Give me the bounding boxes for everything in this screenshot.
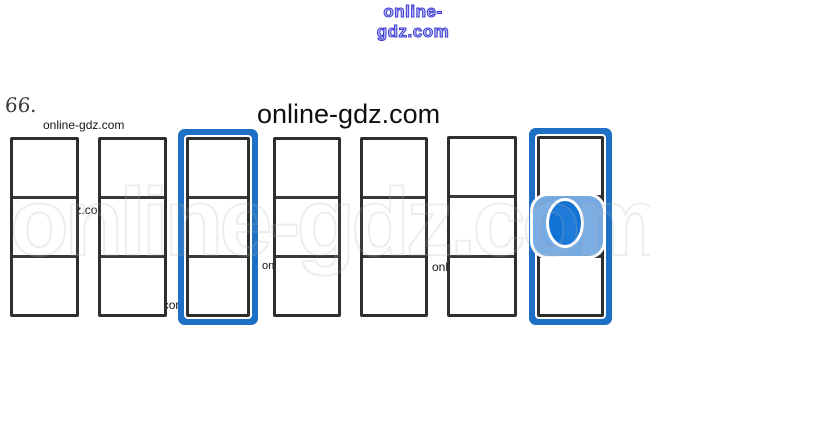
strip-4-cell-2-empty bbox=[276, 196, 338, 255]
strip-1-cell-2-empty bbox=[13, 196, 76, 255]
strip-3-cell-2-empty bbox=[189, 196, 247, 255]
strip-5 bbox=[360, 137, 428, 317]
scanned-page: online-gdz.com 66. online-gdz.com online… bbox=[0, 0, 823, 430]
strip-5-cell-1-empty bbox=[363, 140, 425, 196]
strip-6-cell-1-empty bbox=[450, 139, 514, 195]
strip-2-cell-3-empty bbox=[101, 255, 164, 314]
strip-7-cell-2-filled bbox=[540, 195, 601, 254]
strip-2 bbox=[98, 137, 167, 317]
strip-3-cell-1-empty bbox=[189, 140, 247, 196]
strip-1 bbox=[10, 137, 79, 317]
strip-5-cell-3-empty bbox=[363, 255, 425, 314]
filled-cell-ghost-oval bbox=[546, 198, 584, 248]
strip-3-cell-3-empty bbox=[189, 255, 247, 314]
exercise-number: 66. bbox=[4, 93, 37, 117]
strip-5-cell-2-empty bbox=[363, 196, 425, 255]
strip-7-cell-1-empty bbox=[540, 139, 601, 195]
watermark-small-1: online-gdz.com bbox=[43, 118, 124, 132]
strip-1-cell-1-empty bbox=[13, 140, 76, 196]
strip-6-cell-3-empty bbox=[450, 255, 514, 314]
filled-cell-ghost-square bbox=[530, 193, 606, 259]
strip-6 bbox=[447, 136, 517, 317]
strip-1-cell-3-empty bbox=[13, 255, 76, 314]
strip-3-highlighted bbox=[186, 137, 250, 317]
strip-7-highlighted bbox=[537, 136, 604, 317]
site-title-watermark: online-gdz.com bbox=[257, 99, 440, 130]
strip-4-cell-1-empty bbox=[276, 140, 338, 196]
strip-4-cell-3-empty bbox=[276, 255, 338, 314]
strip-6-cell-2-empty bbox=[450, 195, 514, 254]
strip-7-cell-3-empty bbox=[540, 255, 601, 314]
watermark-top: online-gdz.com bbox=[348, 2, 478, 42]
strip-2-cell-2-empty bbox=[101, 196, 164, 255]
strip-2-cell-1-empty bbox=[101, 140, 164, 196]
strip-4 bbox=[273, 137, 341, 317]
